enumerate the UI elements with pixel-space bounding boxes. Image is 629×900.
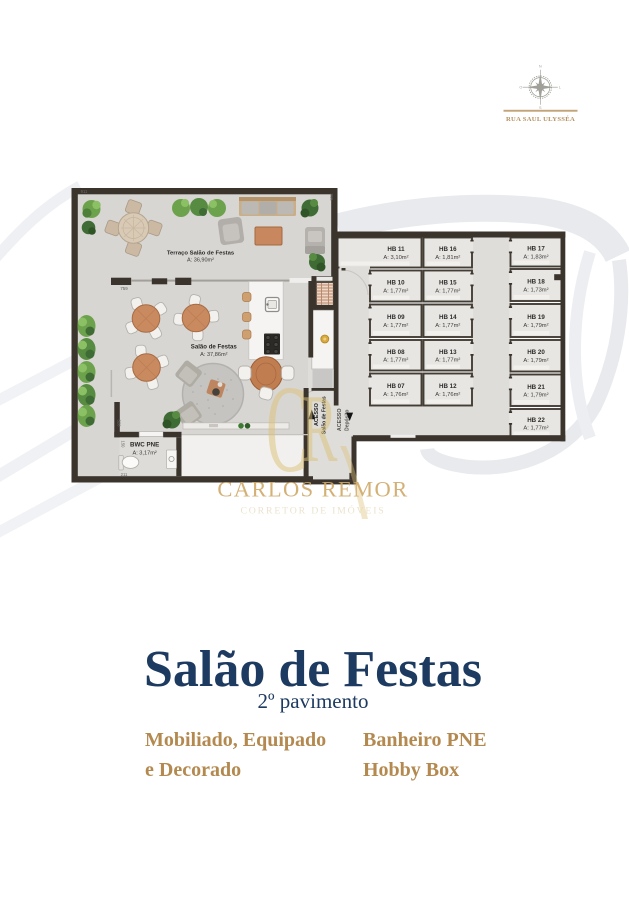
svg-text:315: 315	[329, 194, 334, 202]
svg-text:HB 15: HB 15	[439, 280, 457, 287]
svg-text:HB 16: HB 16	[439, 246, 457, 253]
svg-text:Mobiliado, Equipado: Mobiliado, Equipado	[145, 729, 326, 751]
svg-text:A: 37,86m²: A: 37,86m²	[200, 352, 227, 358]
svg-text:HB 20: HB 20	[527, 349, 545, 356]
svg-text:e Decorado: e Decorado	[145, 759, 241, 781]
svg-text:211: 211	[121, 472, 128, 477]
svg-text:BWC PNE: BWC PNE	[130, 441, 159, 448]
svg-text:HB 07: HB 07	[387, 383, 405, 390]
svg-text:A: 1,77m²: A: 1,77m²	[383, 323, 408, 329]
svg-text:HB 17: HB 17	[527, 246, 545, 253]
svg-text:HB 18: HB 18	[527, 279, 545, 286]
svg-text:A: 1,76m²: A: 1,76m²	[383, 392, 408, 398]
svg-text:759: 759	[120, 286, 128, 291]
svg-text:A: 1,73m²: A: 1,73m²	[523, 287, 548, 293]
svg-text:S: S	[539, 106, 542, 110]
svg-text:HB 14: HB 14	[439, 314, 457, 321]
svg-text:CORRETOR DE IMÓVEIS: CORRETOR DE IMÓVEIS	[240, 505, 385, 517]
svg-text:CARLOS REMOR: CARLOS REMOR	[217, 477, 408, 502]
svg-text:R: R	[301, 375, 338, 484]
svg-text:HB 09: HB 09	[387, 314, 405, 321]
svg-text:A: 1,81m²: A: 1,81m²	[435, 255, 460, 261]
svg-text:Hobby Box: Hobby Box	[363, 759, 459, 781]
svg-text:A: 1,77m²: A: 1,77m²	[383, 358, 408, 364]
svg-text:A: 1,79m²: A: 1,79m²	[523, 323, 548, 329]
svg-text:Terraço Salão de Festas: Terraço Salão de Festas	[167, 251, 235, 257]
svg-text:HB 10: HB 10	[387, 280, 405, 287]
svg-text:A: 1,76m²: A: 1,76m²	[435, 392, 460, 398]
svg-text:A: 36,90m²: A: 36,90m²	[187, 258, 214, 264]
svg-text:A: 1,77m²: A: 1,77m²	[435, 323, 460, 329]
svg-text:A: 1,77m²: A: 1,77m²	[435, 288, 460, 294]
svg-text:HB 08: HB 08	[387, 349, 405, 356]
svg-text:2º pavimento: 2º pavimento	[258, 689, 369, 713]
svg-text:A: 3,10m²: A: 3,10m²	[383, 255, 408, 261]
svg-text:Banheiro PNE: Banheiro PNE	[363, 729, 487, 751]
svg-text:HB 12: HB 12	[439, 383, 457, 390]
svg-text:A: 1,79m²: A: 1,79m²	[523, 393, 548, 399]
svg-text:HB 11: HB 11	[387, 246, 405, 253]
svg-text:Salão de Festas: Salão de Festas	[191, 343, 238, 350]
svg-text:A: 1,77m²: A: 1,77m²	[383, 288, 408, 294]
svg-text:A: 1,83m²: A: 1,83m²	[523, 254, 548, 260]
svg-text:ACESSO: ACESSO	[337, 408, 343, 431]
svg-text:A: 1,79m²: A: 1,79m²	[523, 358, 548, 364]
svg-text:HB 19: HB 19	[527, 314, 545, 321]
svg-text:150: 150	[121, 441, 126, 449]
svg-text:RUA SAUL ULYSSÉA: RUA SAUL ULYSSÉA	[506, 115, 575, 123]
svg-text:911: 911	[81, 189, 88, 194]
svg-text:O: O	[519, 86, 522, 90]
svg-text:528: 528	[117, 420, 122, 428]
svg-text:A: 1,77m²: A: 1,77m²	[435, 358, 460, 364]
svg-text:HB 22: HB 22	[527, 417, 545, 424]
svg-text:HB 21: HB 21	[527, 384, 545, 391]
svg-text:A: 3,17m²: A: 3,17m²	[132, 450, 156, 456]
svg-text:N: N	[539, 65, 542, 69]
svg-text:HB 13: HB 13	[439, 349, 457, 356]
svg-text:L: L	[559, 86, 561, 90]
svg-text:A: 1,77m²: A: 1,77m²	[523, 426, 548, 432]
